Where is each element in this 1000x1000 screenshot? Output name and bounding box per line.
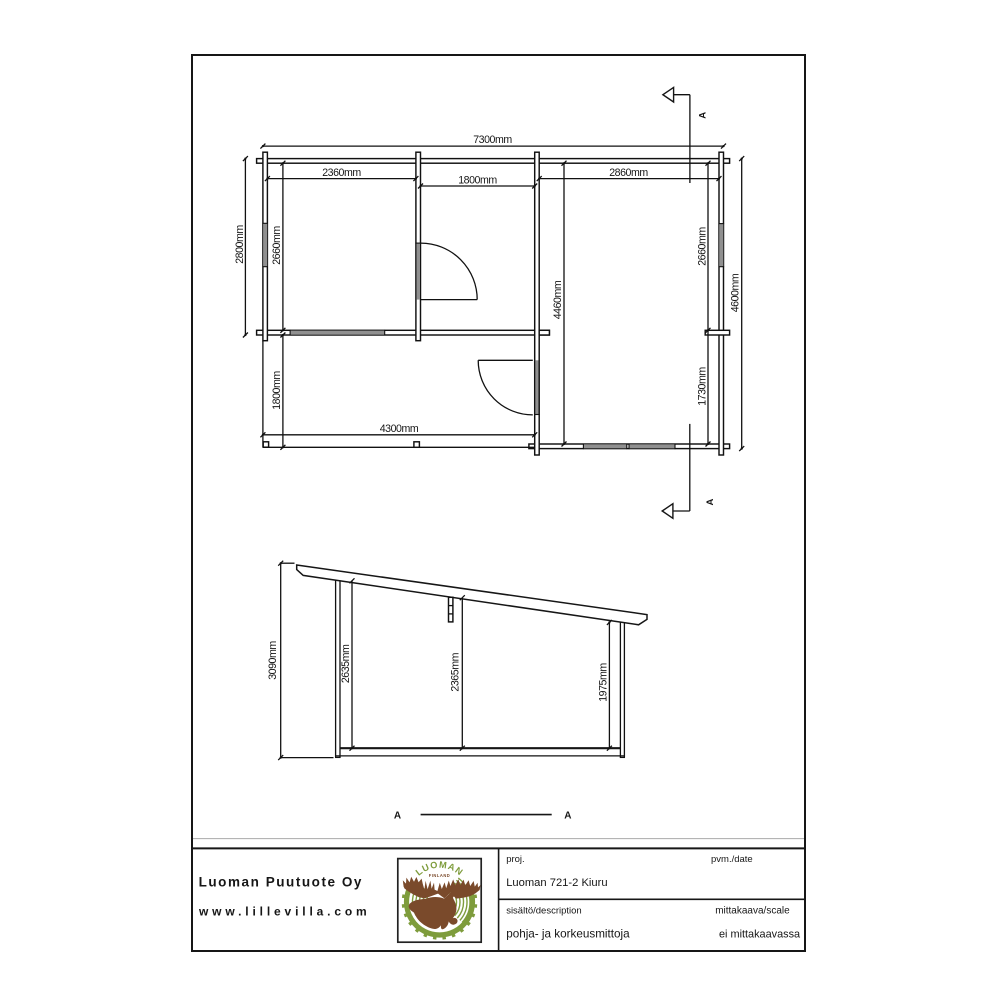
- svg-text:A: A: [394, 810, 401, 821]
- svg-text:2635mm: 2635mm: [340, 644, 352, 683]
- svg-text:Luoman Puutuote Oy: Luoman Puutuote Oy: [199, 874, 363, 889]
- svg-text:pohja- ja korkeusmittoja: pohja- ja korkeusmittoja: [506, 928, 630, 941]
- svg-text:7300mm: 7300mm: [473, 134, 512, 146]
- svg-text:1800mm: 1800mm: [271, 371, 283, 410]
- svg-text:Luoman 721-2 Kiuru: Luoman 721-2 Kiuru: [506, 877, 607, 889]
- svg-text:3090mm: 3090mm: [267, 641, 279, 680]
- svg-text:1975mm: 1975mm: [598, 663, 610, 702]
- svg-text:ei mittakaavassa: ei mittakaavassa: [719, 929, 801, 941]
- svg-text:proj.: proj.: [506, 854, 524, 865]
- svg-text:2660mm: 2660mm: [271, 226, 283, 265]
- svg-text:A: A: [698, 112, 709, 119]
- svg-text:2660mm: 2660mm: [696, 227, 708, 266]
- svg-text:www.lillevilla.com: www.lillevilla.com: [198, 905, 371, 919]
- svg-text:pvm./date: pvm./date: [711, 854, 753, 865]
- svg-text:FINLAND: FINLAND: [429, 873, 450, 878]
- svg-text:4460mm: 4460mm: [552, 280, 564, 319]
- svg-text:4600mm: 4600mm: [729, 273, 741, 312]
- svg-text:2360mm: 2360mm: [322, 167, 361, 179]
- svg-text:2860mm: 2860mm: [609, 167, 648, 179]
- svg-text:A: A: [705, 498, 716, 505]
- svg-text:A: A: [564, 810, 571, 821]
- svg-text:2365mm: 2365mm: [450, 652, 462, 691]
- svg-text:sisältö/description: sisältö/description: [506, 906, 582, 917]
- svg-text:4300mm: 4300mm: [380, 423, 419, 435]
- svg-text:1730mm: 1730mm: [696, 367, 708, 406]
- svg-text:1800mm: 1800mm: [458, 174, 497, 186]
- svg-text:2800mm: 2800mm: [234, 225, 246, 264]
- svg-text:mittakaava/scale: mittakaava/scale: [715, 906, 790, 917]
